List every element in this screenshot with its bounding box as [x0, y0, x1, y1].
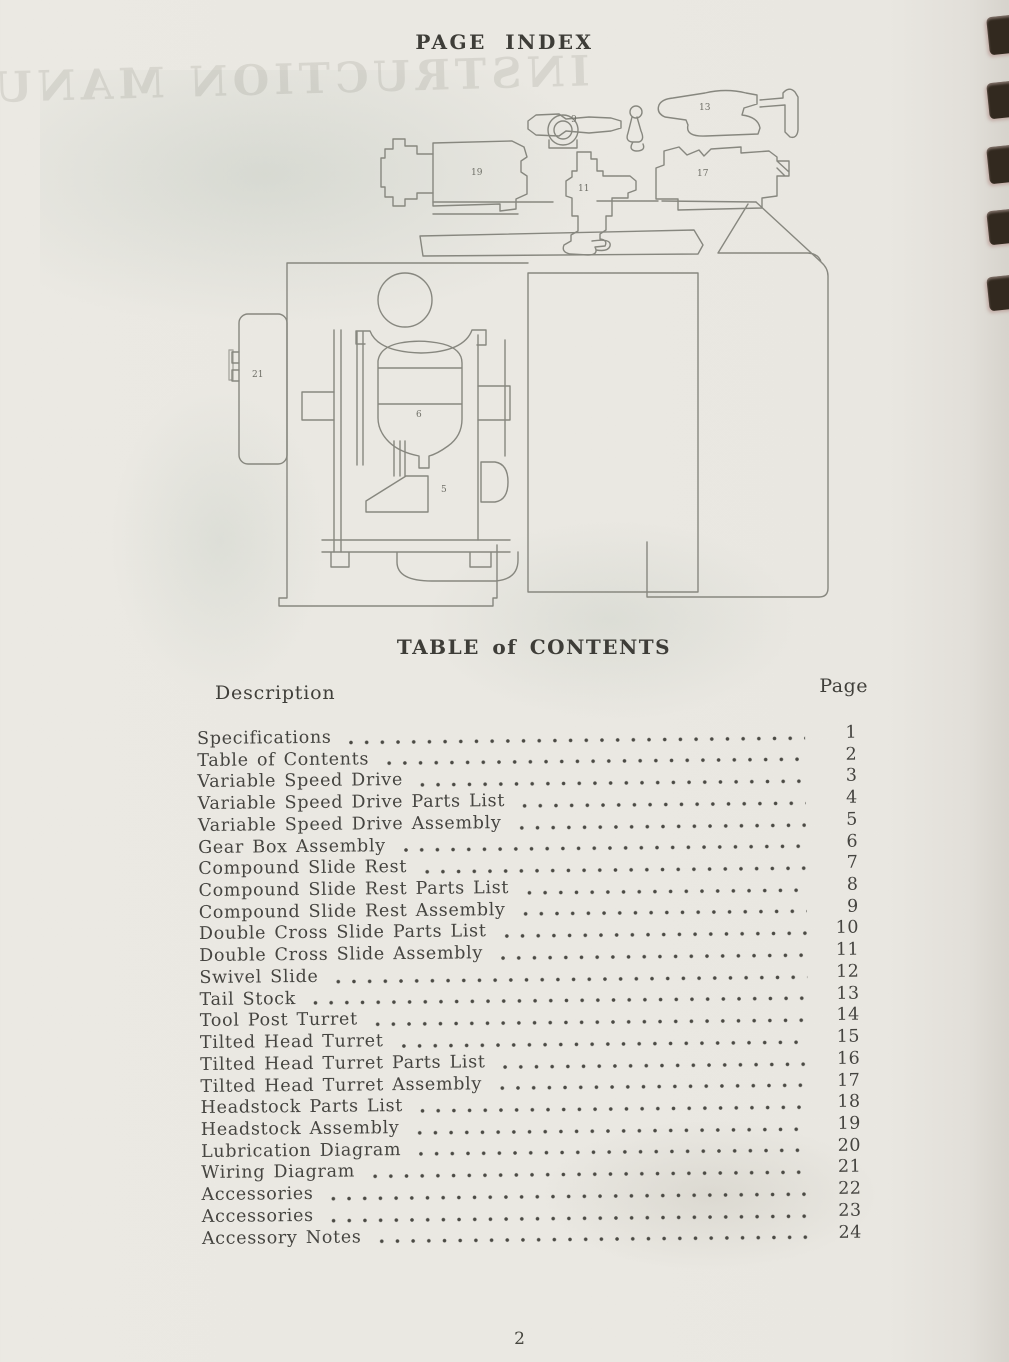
toc-column-description: Description	[215, 682, 335, 704]
toc-entry-description: Tilted Head Turret	[200, 1031, 384, 1053]
manual-page: PAGE INDEX	[0, 0, 1009, 1362]
mechanism-arms	[302, 386, 510, 420]
toc-dot-leader	[514, 897, 806, 922]
right-leg-outline	[647, 202, 828, 597]
mechanism-base	[322, 540, 518, 581]
toc-entry-description: Headstock Parts List	[201, 1096, 404, 1118]
toc-entry-description: Tail Stock	[200, 989, 297, 1010]
post-outline	[563, 152, 636, 255]
toc-entry-description: Accessories	[202, 1206, 314, 1227]
callout-label: 17	[697, 169, 709, 179]
toc-entry-description: Variable Speed Drive Parts List	[198, 791, 506, 814]
binding-ring	[986, 15, 1009, 56]
binding-ring	[986, 81, 1009, 120]
toc-entry-page: 22	[819, 1179, 861, 1199]
toc-dot-leader	[514, 788, 806, 813]
toc-entry-page: 16	[818, 1048, 860, 1068]
scan-pen-mark	[229, 350, 233, 380]
toc-entry-page: 2	[815, 744, 857, 764]
toc-entry-description: Compound Slide Rest Parts List	[198, 878, 509, 901]
toc-entry-page: 19	[819, 1114, 861, 1134]
mechanism-right-block	[481, 462, 508, 502]
toc-entry-description: Gear Box Assembly	[198, 836, 386, 858]
cabinet-door	[528, 273, 698, 592]
toc-entry-description: Tilted Head Turret Assembly	[200, 1074, 482, 1097]
toc-entry-page: 10	[817, 918, 859, 938]
toc-entry-page: 17	[818, 1070, 860, 1090]
callout-label: 5	[441, 485, 447, 495]
toc-entry-description: Accessory Notes	[202, 1227, 362, 1249]
lever-outline	[627, 117, 644, 151]
callout-label: 19	[471, 168, 483, 178]
toc-dot-leader	[495, 919, 807, 944]
toc-list: Specifications 1 Table of Contents 2 Var…	[197, 723, 862, 1251]
toc-entry-page: 24	[820, 1222, 862, 1242]
toc-entry-page: 13	[817, 983, 859, 1003]
toc-entry-description: Tool Post Turret	[200, 1010, 358, 1032]
toc-entry-page: 18	[819, 1092, 861, 1112]
toc-dot-leader	[492, 940, 807, 965]
page-number: 2	[15, 1329, 1009, 1349]
mechanism-verticals	[334, 330, 505, 552]
toc-dot-leader	[510, 810, 806, 835]
toc-entry-page: 23	[820, 1200, 862, 1220]
binding-ring	[986, 145, 1009, 185]
toc-entry-description: Tilted Head Turret Parts List	[200, 1052, 486, 1075]
binding-ring	[986, 275, 1009, 312]
toc-dot-leader	[491, 1071, 809, 1096]
toc-entry-page: 21	[819, 1157, 861, 1177]
dome-outline	[378, 341, 462, 468]
toc-entry-description: Variable Speed Drive	[197, 770, 403, 792]
toc-entry-page: 9	[817, 896, 859, 916]
toc-entry-description: Compound Slide Rest Assembly	[199, 900, 506, 923]
toc-entry-description: Specifications	[197, 728, 332, 749]
toc-heading: TABLE of CONTENTS	[397, 635, 671, 659]
toc-entry-description: Double Cross Slide Parts List	[199, 922, 487, 945]
toc-entry-description: Headstock Assembly	[201, 1118, 400, 1140]
lathe-diagram: 9 13 19 11 17 21 6 5	[225, 82, 835, 627]
toc-entry-page: 5	[816, 810, 858, 830]
callout-label: 21	[252, 370, 263, 380]
slide-wheel-inner	[554, 121, 572, 139]
toc-header: Description Page	[197, 682, 868, 704]
chip-pan-outline	[420, 230, 703, 256]
binding-ring	[986, 209, 1009, 246]
page-title: PAGE INDEX	[0, 30, 1009, 54]
toc-entry-description: Lubrication Diagram	[201, 1140, 401, 1162]
toc-entry-description: Variable Speed Drive Assembly	[198, 813, 502, 836]
toc-entry-page: 15	[818, 1027, 860, 1047]
anvil-outline	[658, 89, 798, 137]
toc-entry-page: 1	[815, 723, 857, 743]
handwheel-circle	[378, 273, 432, 327]
toc-entry-description: Swivel Slide	[199, 967, 318, 988]
toc-entry-page: 3	[815, 766, 857, 786]
toc-column-page: Page	[819, 675, 868, 697]
toc-dot-leader	[518, 875, 807, 899]
toc-entry-description: Accessories	[201, 1184, 313, 1205]
toc-entry-page: 6	[816, 831, 858, 851]
callout-label: 13	[699, 103, 711, 113]
toc-dot-leader	[370, 1223, 810, 1249]
callout-label: 9	[571, 115, 577, 125]
callout-label: 6	[416, 410, 422, 420]
toc-entry-description: Table of Contents	[197, 749, 369, 771]
toc-dot-leader	[494, 1049, 808, 1074]
bed-lines	[433, 201, 756, 214]
toc-entry-description: Double Cross Slide Assembly	[199, 943, 483, 966]
toc-entry-description: Compound Slide Rest	[198, 857, 407, 879]
side-panel-outline	[239, 314, 287, 464]
toc-entry-page: 20	[819, 1135, 861, 1155]
toc-entry-page: 14	[818, 1005, 860, 1025]
toc-entry-page: 7	[816, 853, 858, 873]
toc-entry-page: 4	[816, 788, 858, 808]
toc-entry-page: 11	[817, 940, 859, 960]
toc-entry-page: 8	[816, 875, 858, 895]
toc-entry-page: 12	[817, 962, 859, 982]
callout-label: 11	[578, 184, 589, 194]
motor-fins-outline	[381, 139, 433, 206]
lever-knob	[630, 106, 642, 118]
toc-entry-description: Wiring Diagram	[201, 1162, 355, 1183]
funnel-outline	[366, 441, 428, 512]
